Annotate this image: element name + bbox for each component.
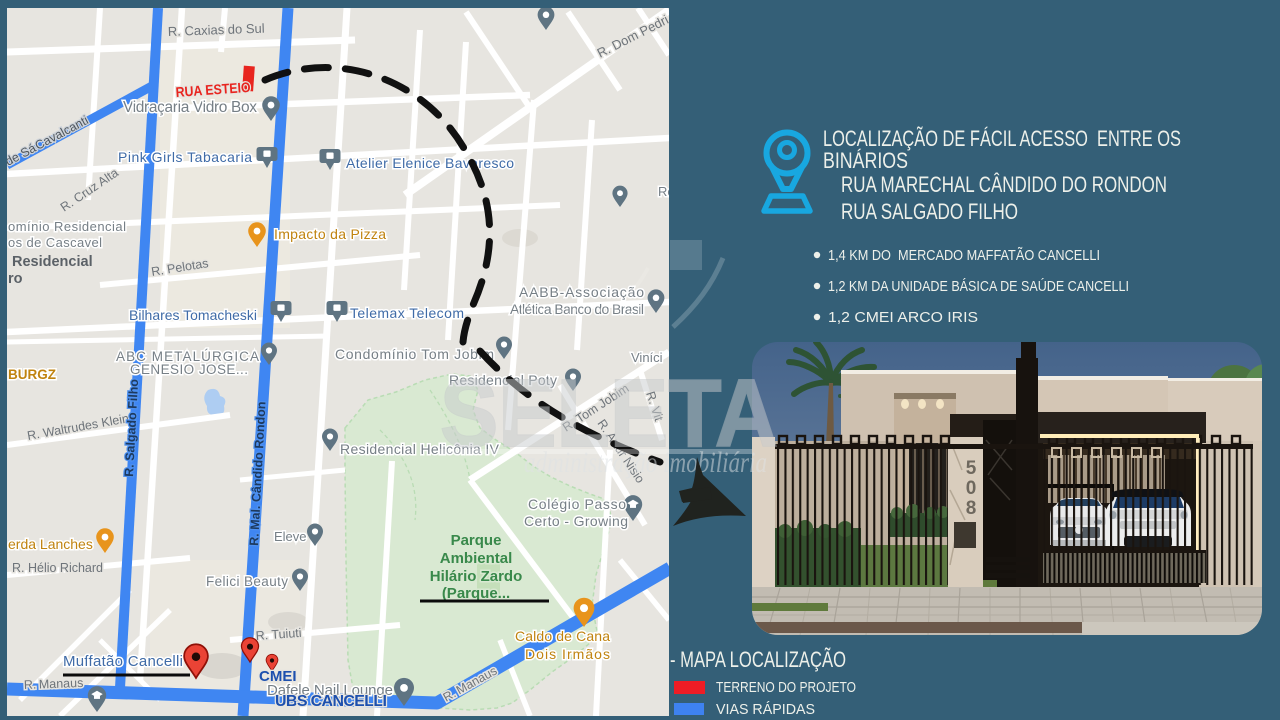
svg-text:TERRENO DO PROJETO: TERRENO DO PROJETO	[716, 679, 856, 696]
svg-text:VIAS RÁPIDAS: VIAS RÁPIDAS	[716, 701, 815, 718]
svg-text:- MAPA LOCALIZAÇÃO: - MAPA LOCALIZAÇÃO	[670, 647, 846, 672]
svg-text:RUA SALGADO FILHO: RUA SALGADO FILHO	[841, 199, 1018, 224]
svg-text:1,4 KM DO MERCADO MAFFATÃO CA: 1,4 KM DO MERCADO MAFFATÃO CANCELLI	[828, 247, 1100, 264]
svg-text:BINÁRIOS: BINÁRIOS	[823, 148, 908, 173]
svg-text:1,2 CMEI ARCO IRIS: 1,2 CMEI ARCO IRIS	[828, 309, 978, 326]
svg-text:8: 8	[966, 498, 977, 519]
svg-text:administração imobiliária: administração imobiliária	[524, 446, 767, 479]
svg-text:5: 5	[966, 458, 977, 479]
svg-text:1,2 KM DA UNIDADE BÁSICA DE SA: 1,2 KM DA UNIDADE BÁSICA DE SAÚDE CANCEL…	[828, 278, 1129, 295]
svg-text:RUA MARECHAL CÂNDIDO DO RONDON: RUA MARECHAL CÂNDIDO DO RONDON	[841, 172, 1167, 197]
svg-text:0: 0	[966, 478, 977, 499]
